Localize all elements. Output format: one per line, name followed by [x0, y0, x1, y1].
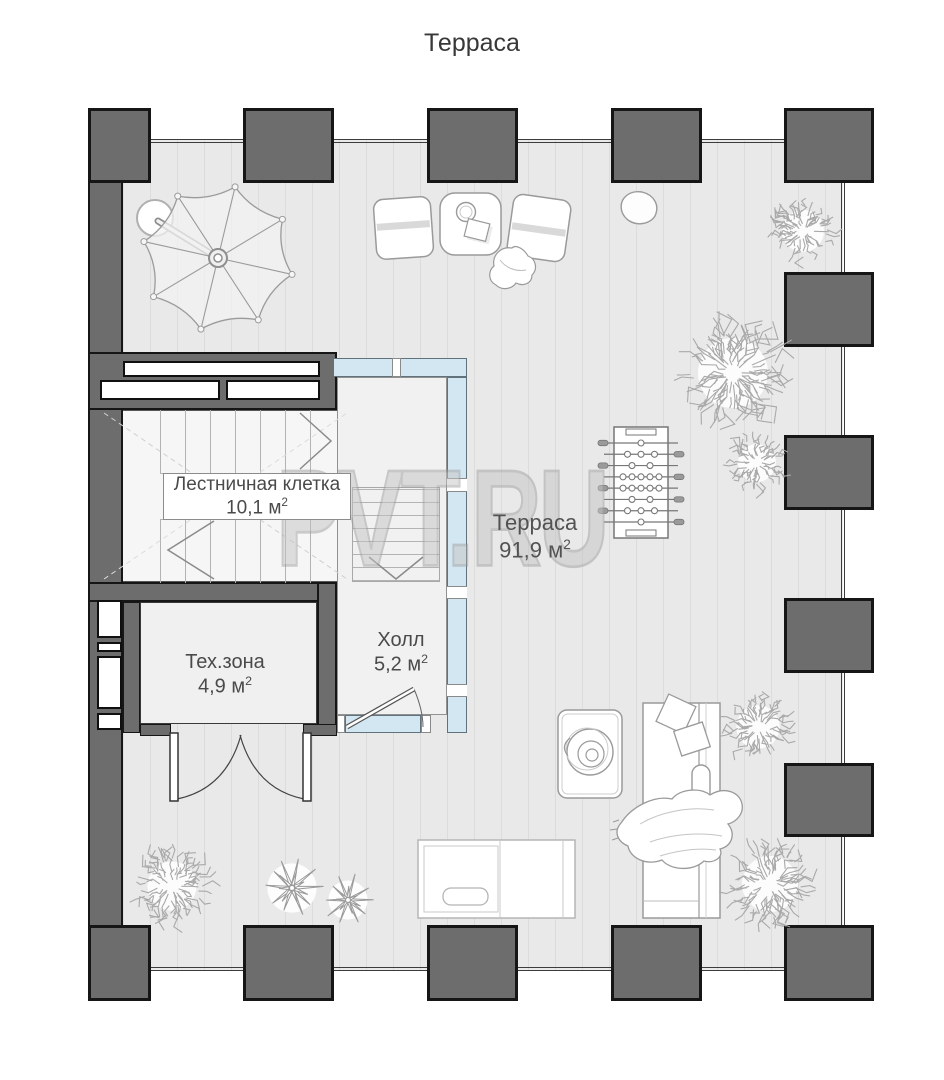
- column: [784, 763, 874, 837]
- column: [243, 108, 334, 183]
- tech-door-stub-left: [140, 724, 171, 736]
- room-label-staircase: Лестничная клетка 10,1 м2: [163, 473, 351, 520]
- column: [88, 108, 151, 183]
- stairs-lower-flight: [160, 519, 332, 583]
- mullion: [447, 684, 467, 697]
- window: [97, 642, 122, 652]
- left-wall: [88, 108, 123, 931]
- room-name: Холл: [338, 628, 464, 652]
- mullion: [447, 478, 467, 492]
- deck-edge-right: [841, 140, 845, 971]
- window: [226, 380, 320, 400]
- mullion: [447, 586, 467, 599]
- window: [97, 713, 122, 730]
- room-label-terrace: Терраса 91,9 м2: [455, 510, 615, 564]
- room-label-tech: Тех.зона 4,9 м2: [154, 650, 296, 699]
- room-area: 4,9 м2: [154, 674, 296, 699]
- column: [243, 925, 334, 1001]
- window: [97, 656, 122, 709]
- column: [784, 435, 874, 510]
- tech-right-wall: [317, 582, 337, 733]
- window: [97, 600, 122, 638]
- column: [784, 598, 874, 673]
- window: [123, 361, 320, 377]
- tech-door-stub-right: [303, 724, 337, 736]
- column: [611, 925, 702, 1001]
- tech-left-wall: [123, 602, 140, 733]
- room-label-hall: Холл 5,2 м2: [338, 628, 464, 677]
- room-area: 10,1 м2: [164, 496, 350, 520]
- room-name: Тех.зона: [154, 650, 296, 674]
- core-mid-wall: [88, 582, 337, 602]
- page-title: Терраса: [0, 28, 944, 59]
- column: [427, 108, 518, 183]
- stairs-hall-flight: [352, 487, 440, 582]
- window: [100, 380, 220, 400]
- door-jamb: [337, 715, 345, 733]
- door-jamb: [421, 715, 431, 733]
- column: [88, 925, 151, 1001]
- room-name: Лестничная клетка: [164, 473, 350, 496]
- glazed-wall-bottom: [345, 715, 421, 733]
- column: [784, 272, 874, 347]
- column: [784, 108, 874, 183]
- room-name: Терраса: [455, 510, 615, 537]
- column: [784, 925, 874, 1001]
- column: [611, 108, 702, 183]
- stairs-upper-flight: [160, 410, 332, 474]
- room-area: 5,2 м2: [338, 652, 464, 677]
- mullion: [392, 358, 401, 377]
- room-area: 91,9 м2: [455, 537, 615, 564]
- column: [427, 925, 518, 1001]
- floor-plan-page: Терраса: [0, 0, 944, 1080]
